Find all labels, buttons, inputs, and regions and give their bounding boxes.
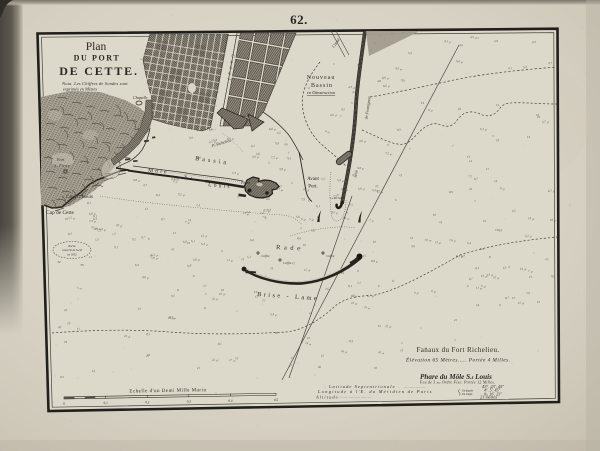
svg-text:............................: ............................ bbox=[338, 395, 372, 399]
svg-text:13: 13 bbox=[527, 135, 531, 139]
svg-text:11: 11 bbox=[89, 255, 92, 259]
svg-text:Port.: Port. bbox=[308, 185, 318, 190]
svg-text:11gr: 11gr bbox=[227, 258, 233, 263]
svg-text:11: 11 bbox=[486, 167, 489, 171]
svg-text:Rade: Rade bbox=[276, 244, 304, 252]
svg-text:Bassin: Bassin bbox=[311, 83, 333, 89]
svg-text:15: 15 bbox=[537, 300, 541, 304]
svg-text:9gr: 9gr bbox=[431, 289, 436, 294]
svg-text:12: 12 bbox=[92, 369, 96, 373]
svg-text:9gr: 9gr bbox=[414, 290, 419, 295]
svg-text:Altitude: Altitude bbox=[315, 394, 339, 399]
svg-text:en Construction: en Construction bbox=[307, 90, 336, 95]
svg-text:14: 14 bbox=[469, 159, 473, 163]
svg-text:en 1852: en 1852 bbox=[67, 253, 77, 257]
svg-text:21: 21 bbox=[454, 318, 458, 322]
svg-text:7gr: 7gr bbox=[262, 215, 267, 220]
svg-text:35: 35 bbox=[80, 263, 84, 267]
svg-text:5gr: 5gr bbox=[309, 217, 314, 222]
svg-text:13: 13 bbox=[307, 336, 311, 340]
svg-text:exprimés en Mètres: exprimés en Mètres bbox=[63, 87, 98, 92]
svg-text:21 mètres: 21 mètres bbox=[480, 395, 497, 400]
svg-text:11: 11 bbox=[173, 231, 176, 235]
svg-text:Nota. Les Chiffres de Sondes s: Nota. Les Chiffres de Sondes sont bbox=[61, 81, 128, 86]
svg-text:15: 15 bbox=[495, 228, 499, 232]
svg-text:Cap S.t Louis: Cap S.t Louis bbox=[66, 195, 93, 200]
svg-text:62.: 62. bbox=[290, 12, 308, 27]
svg-text:Plan: Plan bbox=[86, 41, 107, 53]
svg-text:9gr: 9gr bbox=[428, 108, 433, 112]
svg-text:S.t Pierre: S.t Pierre bbox=[54, 163, 70, 168]
svg-text:Longitude à l'E. du Méridien d: Longitude à l'E. du Méridien de Paris bbox=[317, 389, 433, 394]
svg-text:Fort: Fort bbox=[56, 157, 65, 162]
svg-text:Phare: Phare bbox=[240, 181, 250, 185]
svg-text:7gr: 7gr bbox=[528, 269, 533, 273]
svg-text:Nouveau: Nouveau bbox=[307, 75, 336, 81]
svg-text:Coffre: Coffre bbox=[283, 261, 292, 265]
svg-text:..................: .................. bbox=[404, 385, 426, 389]
svg-text:DE CETTE.: DE CETTE. bbox=[59, 64, 139, 78]
svg-text:10: 10 bbox=[536, 113, 540, 117]
svg-text:Avant: Avant bbox=[307, 177, 319, 182]
svg-text:En temps: En temps bbox=[461, 393, 472, 396]
svg-text:17: 17 bbox=[529, 275, 533, 279]
svg-text:13: 13 bbox=[147, 353, 151, 357]
svg-text:Élévation 65 Mètres..... Porté: Élévation 65 Mètres..... Portée 4 Milles… bbox=[405, 356, 510, 364]
svg-text:14: 14 bbox=[496, 103, 500, 107]
svg-text:Cap de Cette: Cap de Cette bbox=[46, 210, 74, 216]
svg-text:32: 32 bbox=[57, 260, 61, 264]
svg-text:Coffre: Coffre bbox=[326, 254, 335, 258]
svg-text:couverte de 6m50: couverte de 6m50 bbox=[62, 248, 83, 252]
svg-text:6gr: 6gr bbox=[301, 217, 306, 221]
svg-text:Coffre: Coffre bbox=[261, 254, 270, 258]
svg-text:DU PORT: DU PORT bbox=[74, 54, 121, 63]
svg-text:J.n des Stes: J.n des Stes bbox=[330, 197, 343, 200]
svg-text:Fanaux du Fort Richelieu.: Fanaux du Fort Richelieu. bbox=[416, 346, 499, 354]
svg-text:17: 17 bbox=[512, 296, 516, 300]
svg-text:15: 15 bbox=[483, 219, 487, 223]
svg-text:5gr: 5gr bbox=[77, 286, 82, 291]
svg-text:Chapelle: Chapelle bbox=[133, 95, 148, 100]
svg-text:20: 20 bbox=[318, 365, 322, 369]
